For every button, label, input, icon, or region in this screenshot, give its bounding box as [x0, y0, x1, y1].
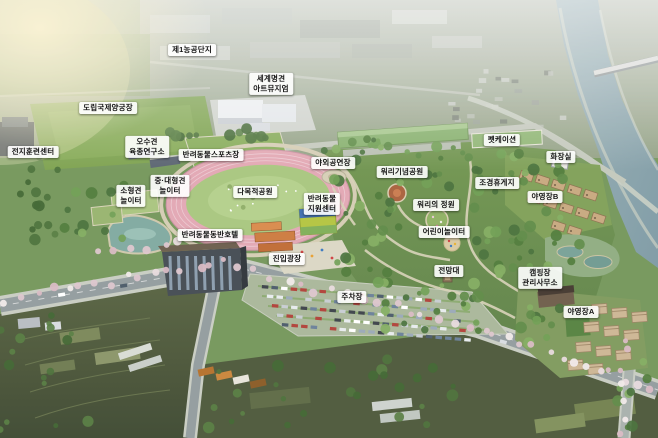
haze-overlay [0, 0, 658, 438]
park-masterplan-rendering: 제1농공단지세계명견 아트뮤지엄도립국제양궁장전지훈련센터오수견 육종연구소반려… [0, 0, 658, 438]
terrain-art [0, 0, 658, 438]
